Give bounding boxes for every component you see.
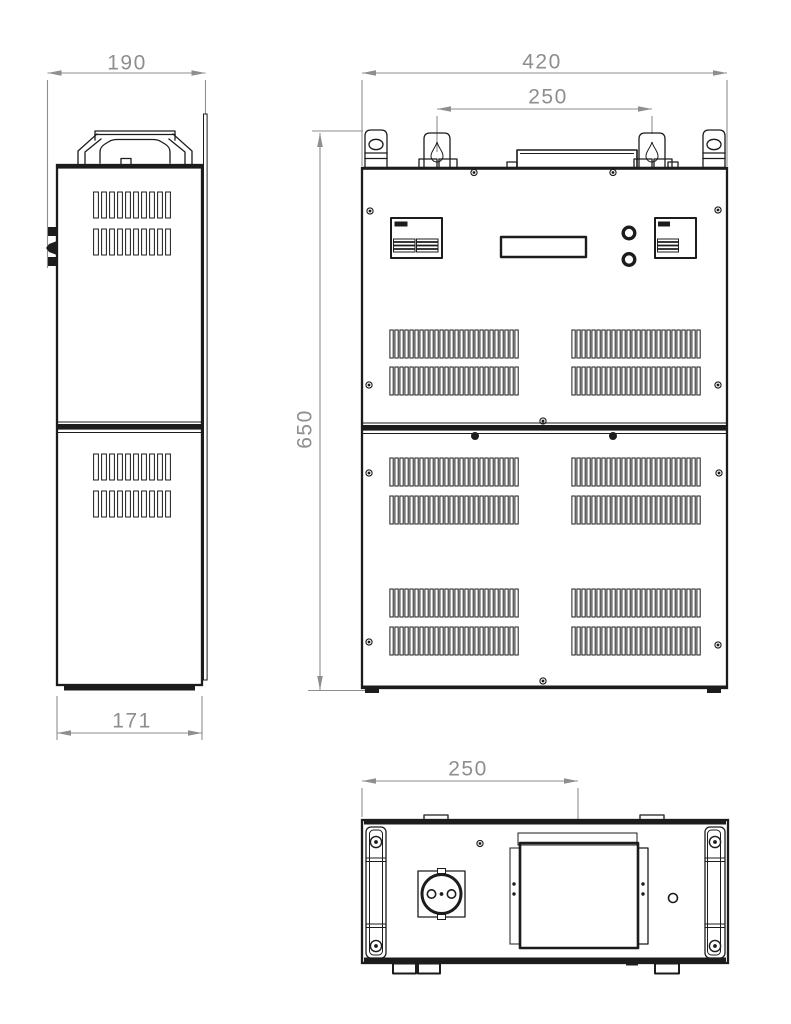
dimension-label-base-width: 171: [112, 711, 152, 732]
foot: [707, 688, 721, 693]
mounting-bracket-left: [365, 130, 387, 168]
side-top-edge: [57, 165, 202, 169]
dimension-label-hanger-span: 250: [528, 87, 568, 108]
foot: [365, 688, 379, 693]
keyhole-hanger-right: [634, 133, 672, 168]
dimension-label-front-width: 420: [522, 52, 562, 73]
brand-mark: [658, 222, 670, 227]
bottom-bottom-band: [364, 958, 726, 963]
bottom-body: [362, 820, 728, 963]
side-base: [64, 685, 195, 691]
bracket-slot: [707, 139, 721, 149]
keyhole-hanger-left: [419, 133, 457, 168]
drawing-page: 190 420 250 650 171 250: [0, 0, 791, 1024]
bracket-slot: [369, 139, 383, 149]
dimension-label-height: 650: [295, 409, 316, 449]
mounting-bracket-right: [703, 130, 725, 168]
dimension-label-side-width: 190: [107, 53, 147, 74]
front-view: [308, 73, 727, 693]
side-rear-flange: [204, 114, 208, 680]
dimension-250-top: [437, 109, 652, 152]
side-handle: [78, 131, 192, 166]
front-top-edge: [362, 167, 727, 170]
front-bottom-edge: [362, 686, 727, 689]
dimension-label-cover-offset: 250: [448, 759, 488, 780]
side-view: [46, 73, 207, 740]
bottom-view: [362, 781, 728, 974]
bottom-top-band: [364, 821, 726, 825]
drawing-canvas: [0, 0, 791, 1024]
brand-mark: [395, 222, 408, 227]
